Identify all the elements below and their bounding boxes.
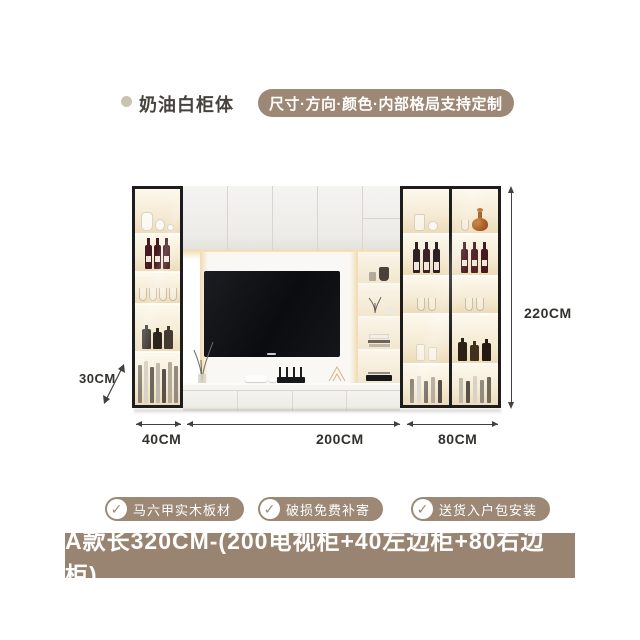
book bbox=[368, 340, 390, 343]
book bbox=[424, 381, 428, 403]
wine-bottle bbox=[163, 245, 170, 269]
niche-plant bbox=[358, 285, 400, 318]
product-title: 奶油白柜体 bbox=[139, 91, 234, 117]
media-device bbox=[366, 372, 392, 381]
feature-label: 送货入户包安装 bbox=[439, 500, 537, 519]
wine-bottle bbox=[471, 249, 478, 273]
door-right-items bbox=[452, 342, 499, 361]
check-icon: ✓ bbox=[413, 499, 433, 519]
glass-bottle bbox=[428, 347, 437, 361]
liquor-bottle bbox=[482, 343, 491, 361]
vase bbox=[428, 221, 438, 231]
book bbox=[473, 376, 477, 403]
book bbox=[487, 377, 491, 403]
device-tray bbox=[368, 372, 390, 374]
tv-counter bbox=[183, 383, 400, 411]
white-remote bbox=[269, 378, 276, 382]
dimension-label-tv-width: 200CM bbox=[316, 431, 364, 447]
left-display-cabinet bbox=[132, 186, 183, 408]
plant-pot bbox=[387, 307, 393, 314]
wine-glass bbox=[159, 288, 167, 301]
wine-glass bbox=[465, 298, 473, 311]
door-left-items bbox=[403, 298, 450, 311]
shelf-books bbox=[135, 353, 180, 405]
book bbox=[410, 379, 414, 403]
width-arrow-right-cabinet bbox=[407, 424, 498, 425]
drawer-seam bbox=[346, 390, 347, 411]
door-right-items bbox=[452, 249, 499, 273]
wine-glass bbox=[417, 298, 425, 311]
liquor-bottle bbox=[153, 332, 162, 349]
door-left-items bbox=[403, 249, 450, 273]
wine-bottle bbox=[145, 245, 152, 269]
floor-shadow bbox=[134, 409, 501, 414]
glass bbox=[461, 220, 469, 231]
decor-vase bbox=[379, 267, 389, 281]
height-dimension-line bbox=[511, 191, 512, 404]
display-niches bbox=[358, 252, 400, 383]
cabinet-mullion bbox=[449, 189, 452, 405]
book bbox=[150, 367, 154, 403]
dimension-label-height: 220CM bbox=[524, 305, 572, 321]
book bbox=[438, 380, 442, 403]
book bbox=[162, 369, 166, 403]
width-arrow-left-cabinet bbox=[136, 424, 181, 425]
feature-badge-damage: ✓ 破损免费补寄 bbox=[258, 497, 383, 521]
depth-arrow-icon bbox=[99, 362, 129, 406]
cabinet-door-seam bbox=[227, 186, 228, 250]
wine-glass bbox=[149, 288, 157, 301]
upper-cabinets bbox=[183, 186, 400, 250]
drawer-seam bbox=[292, 390, 293, 411]
tv-screen bbox=[204, 271, 340, 357]
tv-logo bbox=[267, 353, 276, 355]
feature-label: 马六甲实木板材 bbox=[133, 500, 231, 519]
router-antenna bbox=[286, 367, 288, 377]
vase bbox=[141, 212, 153, 231]
niche-books bbox=[358, 318, 400, 351]
wine-bottle bbox=[481, 249, 488, 273]
niche-decor-vases bbox=[358, 252, 400, 285]
door-left-items bbox=[403, 214, 450, 231]
book bbox=[369, 344, 390, 347]
liquor-bottle bbox=[458, 342, 467, 361]
book bbox=[168, 362, 172, 403]
cabinet-door-seam bbox=[272, 186, 273, 250]
book bbox=[459, 378, 463, 403]
cabinet-door-seam bbox=[317, 186, 318, 250]
book bbox=[369, 334, 389, 339]
feature-badge-delivery: ✓ 送货入户包安装 bbox=[411, 497, 550, 521]
gold-decor-icon bbox=[327, 365, 347, 383]
feature-label: 破损免费补寄 bbox=[286, 500, 370, 519]
wine-glass bbox=[139, 288, 147, 301]
wine-bottle bbox=[461, 249, 468, 273]
book bbox=[480, 380, 484, 403]
width-arrow-tv-cabinet bbox=[187, 424, 400, 425]
amber-decanter bbox=[472, 218, 488, 231]
wine-bottle bbox=[433, 249, 440, 273]
door-left-items bbox=[403, 376, 450, 403]
vase bbox=[167, 224, 174, 231]
wine-glass bbox=[476, 298, 484, 311]
book bbox=[417, 376, 421, 403]
book bbox=[466, 381, 470, 403]
liquor-bottle bbox=[470, 345, 479, 361]
router-antenna bbox=[279, 367, 281, 377]
plant-sprig-icon bbox=[366, 294, 384, 314]
door-right-items bbox=[452, 218, 499, 231]
book bbox=[431, 377, 435, 403]
wine-bottle bbox=[154, 245, 161, 269]
customize-badge: 尺寸·方向·颜色·内部格局支持定制 bbox=[258, 89, 514, 117]
check-icon: ✓ bbox=[260, 499, 280, 519]
liquor-bottle bbox=[142, 329, 151, 349]
check-icon: ✓ bbox=[107, 499, 127, 519]
router-body bbox=[277, 377, 305, 383]
door-right-items bbox=[452, 298, 499, 311]
shelf-wine-bottles bbox=[135, 235, 180, 273]
wifi-router bbox=[277, 367, 305, 383]
bullet-dot-icon bbox=[121, 96, 132, 107]
pitcher bbox=[414, 214, 425, 231]
product-detail-image: 奶油白柜体 尺寸·方向·颜色·内部格局支持定制 bbox=[0, 0, 640, 640]
decor-cup bbox=[369, 272, 376, 281]
stacked-books bbox=[368, 334, 390, 347]
router-antenna bbox=[293, 367, 295, 377]
door-right-items bbox=[452, 376, 499, 403]
feature-badge-material: ✓ 马六甲实木板材 bbox=[105, 497, 244, 521]
arrow-down-icon bbox=[508, 402, 514, 409]
right-display-cabinet bbox=[400, 186, 501, 408]
white-device bbox=[245, 375, 267, 382]
spec-bar: A款长320CM-(200电视柜+40左边柜+80右边柜) bbox=[65, 533, 575, 578]
shelf-vases bbox=[135, 189, 180, 235]
wine-glass bbox=[428, 298, 436, 311]
niche-media-device bbox=[358, 351, 400, 383]
book bbox=[138, 365, 142, 403]
book bbox=[156, 363, 160, 403]
cabinet-door-seam bbox=[362, 218, 400, 219]
left-cabinet-shelves bbox=[135, 189, 180, 405]
dimension-label-left-width: 40CM bbox=[142, 431, 181, 447]
wine-glass bbox=[169, 288, 177, 301]
book bbox=[174, 366, 178, 403]
shelf-liquor-bottles bbox=[135, 305, 180, 353]
drawer-seam bbox=[237, 390, 238, 411]
liquor-bottle bbox=[164, 330, 173, 349]
vase bbox=[155, 219, 165, 231]
wine-bottle bbox=[423, 249, 430, 273]
door-left-items bbox=[403, 344, 450, 361]
book bbox=[144, 361, 148, 403]
black-box-device bbox=[366, 375, 392, 381]
dimension-label-right-width: 80CM bbox=[438, 431, 477, 447]
glass-bottle bbox=[416, 344, 425, 361]
shelf-glassware bbox=[135, 273, 180, 305]
router-antenna bbox=[300, 367, 302, 377]
counter-plant-icon bbox=[188, 334, 218, 384]
wine-bottle bbox=[413, 249, 420, 273]
